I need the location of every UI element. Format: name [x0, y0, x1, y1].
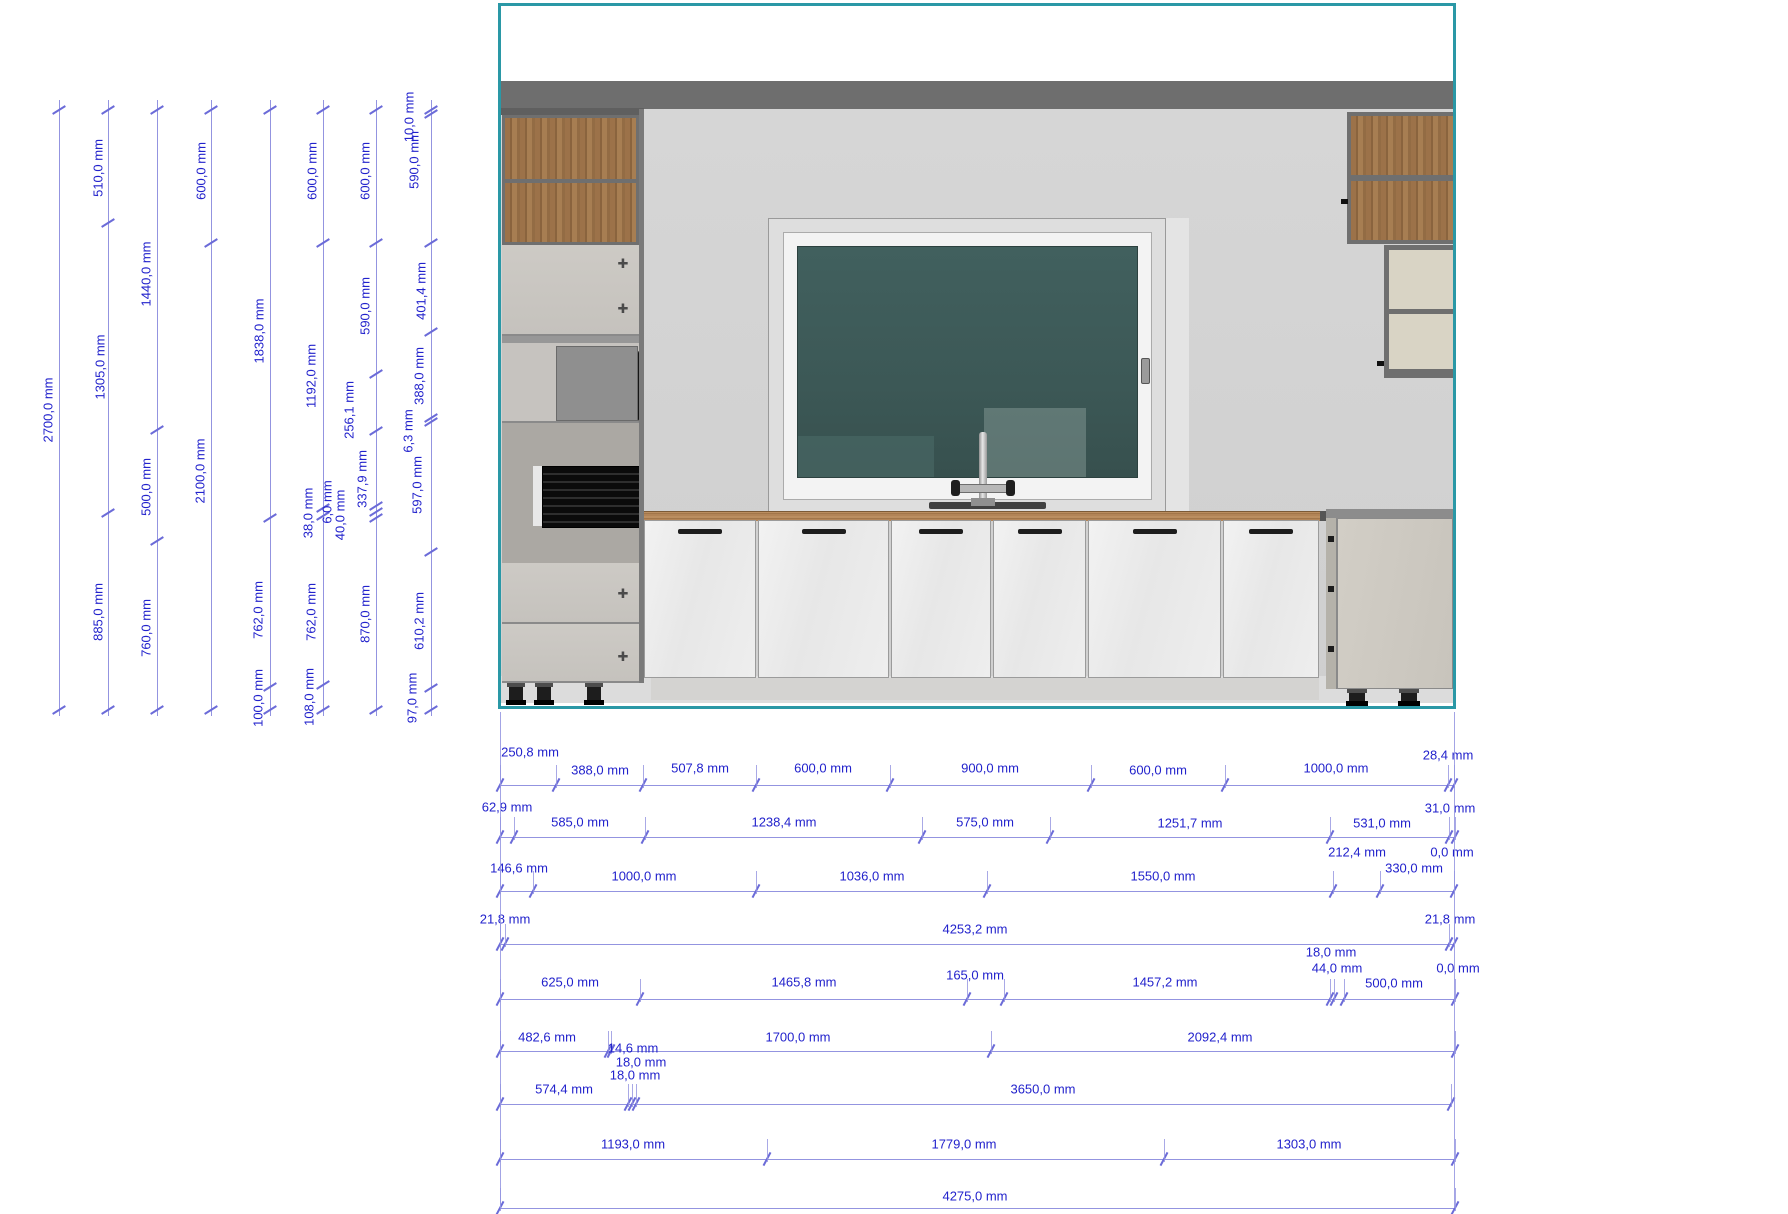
dim-tick	[628, 1097, 637, 1111]
h-dimension-line-6	[500, 1104, 1451, 1105]
base-cabinet-door-6	[1223, 520, 1319, 678]
dim-extension-stub	[632, 1084, 633, 1107]
dim-tick	[1326, 830, 1335, 844]
dim-extension-stub	[636, 1084, 637, 1107]
dim-tick	[369, 369, 383, 379]
dim-extension-stub	[1449, 924, 1450, 947]
dim-tick	[101, 705, 115, 715]
dimension-label: 1465,8 mm	[771, 975, 836, 990]
dim-extension-stub	[500, 1139, 501, 1162]
dim-tick	[1326, 992, 1335, 1006]
faucet-base	[971, 498, 995, 506]
dim-tick	[1450, 884, 1459, 898]
dimension-label: 610,2 mm	[412, 592, 427, 650]
h-dimension-line-4	[500, 999, 1455, 1000]
dimension-label: 1440,0 mm	[139, 241, 154, 306]
dim-tick	[369, 501, 383, 511]
dim-extension-stub	[1451, 1084, 1452, 1107]
dimension-label: 1303,0 mm	[1276, 1137, 1341, 1152]
dim-tick	[987, 1044, 996, 1058]
base-cabinet-door-2	[758, 520, 889, 678]
dimension-label: 500,0 mm	[1365, 976, 1423, 991]
dim-tick	[496, 1201, 505, 1214]
dim-extension-stub	[991, 1031, 992, 1054]
dim-extension-stub	[1004, 979, 1005, 1002]
dimension-label: 597,0 mm	[410, 456, 425, 514]
dim-tick	[963, 992, 972, 1006]
dim-extension-stub	[500, 1031, 501, 1054]
dimension-label: 28,4 mm	[1423, 748, 1474, 763]
dim-tick	[1445, 937, 1454, 951]
dim-tick	[101, 105, 115, 115]
dim-extension-stub	[500, 765, 501, 788]
dimension-label: 575,0 mm	[956, 815, 1014, 830]
dimension-label: 146,6 mm	[490, 861, 548, 876]
dim-extension-stub	[1455, 1139, 1456, 1162]
dim-tick	[607, 1044, 616, 1058]
dimension-label: 1000,0 mm	[1303, 761, 1368, 776]
dim-extension-stub	[533, 871, 534, 894]
dim-tick	[1000, 992, 1009, 1006]
dim-extension-stub	[1333, 871, 1334, 894]
dimension-label: 97,0 mm	[405, 673, 420, 724]
window-handle	[1141, 358, 1150, 384]
window-side-strip	[1166, 218, 1189, 515]
h-dimension-line-3	[500, 944, 1454, 945]
shelf-compartment-bottom	[1389, 314, 1453, 369]
dim-extension-stub	[500, 979, 501, 1002]
dimension-label: 388,0 mm	[412, 347, 427, 405]
cam-fastener-icon: ✚	[616, 257, 630, 271]
hinge-dot	[1328, 586, 1334, 592]
dim-tick	[101, 508, 115, 518]
dim-extension-stub	[1344, 979, 1345, 1002]
dim-tick	[624, 1097, 633, 1111]
faucet-stem	[979, 432, 987, 504]
dimension-label: 1305,0 mm	[93, 334, 108, 399]
dim-tick	[316, 105, 330, 115]
dim-extension-stub	[1050, 817, 1051, 840]
faucet-knob-left	[951, 480, 960, 496]
dim-extension-stub	[500, 924, 501, 947]
wood-cabinet-door-bottom	[505, 183, 636, 242]
dimension-label: 250,8 mm	[501, 745, 559, 760]
dim-tick	[424, 547, 438, 557]
dimension-label: 3650,0 mm	[1010, 1082, 1075, 1097]
kitchen-elevation-canvas: ✚ ✚ ✚ ✚	[0, 0, 1788, 1214]
dimension-label: 900,0 mm	[961, 761, 1019, 776]
dim-tick	[316, 705, 330, 715]
oven-unit	[502, 423, 639, 563]
dimension-label: 18,0 mm	[610, 1068, 661, 1083]
dim-tick	[369, 513, 383, 523]
plinth	[651, 678, 1319, 700]
wood-cabinet-door-top	[1351, 116, 1453, 175]
dim-tick	[632, 1097, 641, 1111]
dimension-label: 600,0 mm	[305, 142, 320, 200]
dim-tick	[496, 992, 505, 1006]
dimension-label: 0,0 mm	[1430, 845, 1473, 860]
dimension-label: 388,0 mm	[571, 763, 629, 778]
dimension-label: 590,0 mm	[407, 131, 422, 189]
adjustable-foot	[1349, 693, 1365, 701]
dim-extension-stub	[890, 765, 891, 788]
dim-extension-stub	[1455, 1031, 1456, 1054]
microwave-unit	[502, 343, 639, 423]
dimension-label: 600,0 mm	[1129, 763, 1187, 778]
dim-tick	[1046, 830, 1055, 844]
base-cabinet-door-4	[993, 520, 1086, 678]
dim-tick	[496, 830, 505, 844]
dimension-label: 0,0 mm	[1436, 961, 1479, 976]
h-dimension-line-0	[500, 785, 1454, 786]
dim-extension-stub	[1454, 765, 1455, 788]
dim-extension-stub	[611, 1031, 612, 1054]
door-handle	[1133, 529, 1177, 534]
dim-extension-stub	[1449, 817, 1450, 840]
dim-tick	[150, 705, 164, 715]
dimension-label: 40,0 mm	[333, 490, 348, 541]
dimension-label: 590,0 mm	[358, 277, 373, 335]
base-cabinet-door-5	[1088, 520, 1221, 678]
h-dimension-line-5	[500, 1051, 1455, 1052]
dimension-label: 482,6 mm	[518, 1030, 576, 1045]
v-dimension-line-6	[376, 100, 377, 716]
dimension-label: 1457,2 mm	[1132, 975, 1197, 990]
dimension-label: 574,4 mm	[535, 1082, 593, 1097]
dimension-label: 62,9 mm	[482, 800, 533, 815]
dim-tick	[496, 884, 505, 898]
glass-reflection-2	[798, 436, 934, 477]
dimension-label: 625,0 mm	[541, 975, 599, 990]
dim-tick	[424, 238, 438, 248]
dim-extension-stub	[556, 765, 557, 788]
dimension-label: 18,0 mm	[616, 1055, 667, 1070]
dim-tick	[763, 1152, 772, 1166]
dimension-label: 1238,4 mm	[751, 815, 816, 830]
dimension-label: 401,4 mm	[414, 262, 429, 320]
v-dimension-line-1	[108, 100, 109, 716]
dimension-label: 21,8 mm	[480, 912, 531, 927]
dim-tick	[52, 705, 66, 715]
dim-tick	[496, 1097, 505, 1111]
dimension-label: 531,0 mm	[1353, 816, 1411, 831]
dim-tick	[316, 680, 330, 690]
dim-tick	[424, 683, 438, 693]
ceiling-strip	[501, 6, 1453, 81]
door-handle	[919, 529, 963, 534]
dim-tick	[1447, 1097, 1456, 1111]
dim-tick	[424, 109, 438, 119]
dim-tick	[1221, 778, 1230, 792]
dim-tick	[1376, 884, 1385, 898]
dim-tick	[529, 884, 538, 898]
dim-tick	[1445, 830, 1454, 844]
dimension-label: 510,0 mm	[91, 139, 106, 197]
oven-side-strip	[533, 466, 542, 526]
adjustable-foot	[1401, 693, 1417, 701]
faucet-knob-right	[1006, 480, 1015, 496]
h-dimension-line-7	[500, 1159, 1455, 1160]
right-wood-wall-cabinet	[1347, 112, 1453, 244]
dimension-label: 500,0 mm	[139, 458, 154, 516]
dim-tick	[316, 503, 330, 513]
dim-extension-stub	[1334, 979, 1335, 1002]
dim-tick	[263, 705, 277, 715]
window-glass	[797, 246, 1138, 478]
dim-tick	[496, 1044, 505, 1058]
dim-extension-stub	[500, 871, 501, 894]
dim-tick	[424, 417, 438, 427]
dim-tick	[1444, 778, 1453, 792]
base-cabinet-door-3	[891, 520, 991, 678]
dim-extension-stub	[1330, 817, 1331, 840]
dim-extension-stub	[1455, 817, 1456, 840]
dim-extension-stub	[1225, 765, 1226, 788]
dimension-extension-line	[500, 712, 501, 1208]
dim-tick	[424, 705, 438, 715]
dimension-label: 21,8 mm	[1425, 912, 1476, 927]
dim-tick	[424, 105, 438, 115]
tall-unit-shelf-slab	[502, 336, 644, 343]
dim-extension-stub	[1091, 765, 1092, 788]
dimension-label: 760,0 mm	[139, 599, 154, 657]
v-dimension-line-3	[211, 100, 212, 716]
dim-tick	[496, 778, 505, 792]
dimension-label: 600,0 mm	[194, 142, 209, 200]
dimension-label: 762,0 mm	[304, 583, 319, 641]
dim-tick	[1340, 992, 1349, 1006]
adjustable-foot	[509, 687, 523, 700]
dim-tick	[369, 507, 383, 517]
dim-tick	[424, 413, 438, 423]
dim-tick	[752, 884, 761, 898]
dim-tick	[369, 238, 383, 248]
dim-extension-stub	[500, 1188, 501, 1211]
dim-extension-stub	[514, 817, 515, 840]
dim-extension-stub	[1454, 924, 1455, 947]
dimension-label: 1193,0 mm	[601, 1137, 665, 1152]
dim-tick	[369, 105, 383, 115]
dimension-label: 1838,0 mm	[252, 298, 267, 363]
dimension-extension-line	[1454, 712, 1455, 1208]
dimension-label: 44,0 mm	[1312, 961, 1363, 976]
dimension-label: 2092,4 mm	[1187, 1030, 1252, 1045]
dimension-label: 100,0 mm	[251, 669, 266, 727]
dim-tick	[263, 105, 277, 115]
right-open-shelf-unit	[1384, 245, 1453, 378]
dimension-label: 1700,0 mm	[765, 1030, 830, 1045]
dim-extension-stub	[967, 979, 968, 1002]
dim-tick	[1451, 1201, 1460, 1214]
dim-tick	[424, 327, 438, 337]
dim-extension-stub	[1455, 1188, 1456, 1211]
dim-tick	[204, 238, 218, 248]
dim-tick	[263, 513, 277, 523]
dimension-label: 14,6 mm	[608, 1041, 659, 1056]
dim-tick	[316, 238, 330, 248]
dim-extension-stub	[640, 979, 641, 1002]
dimension-label: 1000,0 mm	[611, 869, 676, 884]
dimension-label: 585,0 mm	[551, 815, 609, 830]
dim-extension-stub	[922, 817, 923, 840]
dimension-label: 330,0 mm	[1385, 861, 1443, 876]
adjustable-foot	[537, 687, 551, 700]
dimension-label: 1251,7 mm	[1157, 816, 1222, 831]
dimension-label: 4253,2 mm	[942, 922, 1007, 937]
dimension-label: 1550,0 mm	[1130, 869, 1195, 884]
dimension-label: 38,0 mm	[301, 488, 316, 539]
dim-tick	[641, 830, 650, 844]
dimension-label: 2700,0 mm	[41, 377, 56, 442]
dim-tick	[1451, 830, 1460, 844]
door-handle	[1018, 529, 1062, 534]
faucet-crossbar	[957, 484, 1013, 493]
v-dimension-line-5	[323, 100, 324, 716]
dim-extension-stub	[1448, 765, 1449, 788]
dimension-label: 1779,0 mm	[931, 1137, 996, 1152]
wood-cabinet-door-top	[505, 118, 636, 179]
cam-fastener-icon: ✚	[616, 587, 630, 601]
dim-extension-stub	[756, 765, 757, 788]
dim-tick	[983, 884, 992, 898]
door-handle	[678, 529, 722, 534]
dim-extension-stub	[643, 765, 644, 788]
dim-tick	[752, 778, 761, 792]
dimension-label: 212,4 mm	[1328, 845, 1386, 860]
dim-tick	[316, 511, 330, 521]
dimension-label: 4275,0 mm	[942, 1189, 1007, 1204]
dim-extension-stub	[987, 871, 988, 894]
dim-tick	[369, 705, 383, 715]
dim-tick	[1160, 1152, 1169, 1166]
dim-tick	[1451, 992, 1460, 1006]
dim-tick	[150, 425, 164, 435]
glass-reflection	[984, 408, 1086, 477]
right-base-cabinet-top	[1326, 509, 1453, 518]
base-cabinet-door-1	[644, 520, 756, 678]
dim-tick	[263, 682, 277, 692]
dim-extension-stub	[500, 817, 501, 840]
dimension-label: 10,0 mm	[402, 92, 417, 143]
mounting-pin	[1377, 361, 1384, 366]
tall-unit-top-rail	[501, 108, 644, 115]
soffit	[501, 81, 1453, 109]
dim-extension-stub	[645, 817, 646, 840]
dim-extension-stub	[1164, 1139, 1165, 1162]
dimension-label: 6,0 mm	[320, 480, 335, 523]
dim-tick	[918, 830, 927, 844]
v-dimension-line-0	[59, 100, 60, 716]
h-dimension-line-2	[500, 891, 1454, 892]
dimension-label: 1192,0 mm	[304, 344, 319, 408]
dimension-label: 31,0 mm	[1425, 801, 1476, 816]
door-handle	[802, 529, 846, 534]
dim-tick	[552, 778, 561, 792]
dimension-label: 6,3 mm	[401, 409, 416, 452]
dim-tick	[1329, 884, 1338, 898]
dim-extension-stub	[505, 924, 506, 947]
door-handle	[1249, 529, 1293, 534]
dim-tick	[150, 536, 164, 546]
right-base-cabinet-stile	[1326, 518, 1337, 689]
dim-tick	[1451, 1044, 1460, 1058]
dimension-label: 2100,0 mm	[193, 438, 208, 503]
dimension-label: 762,0 mm	[251, 581, 266, 639]
dim-extension-stub	[756, 871, 757, 894]
dimension-label: 600,0 mm	[794, 761, 852, 776]
microwave-window	[556, 346, 638, 421]
dim-tick	[1450, 778, 1459, 792]
dim-tick	[639, 778, 648, 792]
dim-tick	[496, 1152, 505, 1166]
dim-extension-stub	[1454, 871, 1455, 894]
dim-tick	[1451, 1152, 1460, 1166]
dimension-label: 870,0 mm	[358, 585, 373, 643]
dim-extension-stub	[1380, 871, 1381, 894]
elevation-viewport: ✚ ✚ ✚ ✚	[498, 3, 1456, 709]
adjustable-foot	[587, 687, 601, 700]
dim-tick	[1330, 992, 1339, 1006]
v-dimension-line-4	[270, 100, 271, 716]
dim-extension-stub	[628, 1084, 629, 1107]
dim-tick	[886, 778, 895, 792]
dim-tick	[204, 705, 218, 715]
cam-fastener-icon: ✚	[616, 302, 630, 316]
dim-tick	[501, 937, 510, 951]
left-wood-wall-cabinet	[502, 115, 639, 245]
dim-tick	[496, 937, 505, 951]
mounting-pin	[1341, 199, 1348, 204]
dim-tick	[369, 426, 383, 436]
dim-extension-stub	[1455, 979, 1456, 1002]
shelf-compartment-top	[1389, 250, 1453, 309]
dim-tick	[510, 830, 519, 844]
dim-tick	[150, 105, 164, 115]
dimension-label: 256,1 mm	[342, 381, 357, 439]
dim-extension-stub	[500, 1084, 501, 1107]
dim-tick	[1450, 937, 1459, 951]
dim-tick	[1087, 778, 1096, 792]
dimension-label: 600,0 mm	[358, 142, 373, 200]
h-dimension-line-1	[500, 837, 1455, 838]
dimension-label: 337,9 mm	[355, 450, 370, 508]
dim-tick	[204, 105, 218, 115]
hinge-dot	[1328, 536, 1334, 542]
v-dimension-line-7	[431, 100, 432, 716]
dim-extension-stub	[1330, 979, 1331, 1002]
dimension-label: 1036,0 mm	[839, 869, 904, 884]
h-dimension-line-8	[500, 1208, 1455, 1209]
dim-tick	[101, 218, 115, 228]
v-dimension-line-2	[157, 100, 158, 716]
dimension-label: 165,0 mm	[946, 968, 1004, 983]
dim-tick	[636, 992, 645, 1006]
dimension-label: 18,0 mm	[1306, 945, 1357, 960]
dimension-label: 885,0 mm	[91, 583, 106, 641]
right-base-cabinet-door	[1337, 518, 1453, 689]
dim-tick	[604, 1044, 613, 1058]
dimension-label: 108,0 mm	[302, 668, 317, 726]
dim-extension-stub	[767, 1139, 768, 1162]
cam-fastener-icon: ✚	[616, 650, 630, 664]
wood-cabinet-door-bottom	[1351, 181, 1453, 240]
dim-tick	[52, 105, 66, 115]
dim-extension-stub	[608, 1031, 609, 1054]
dimension-label: 507,8 mm	[671, 761, 729, 776]
kitchen-scene: ✚ ✚ ✚ ✚	[501, 6, 1453, 706]
hinge-dot	[1328, 646, 1334, 652]
